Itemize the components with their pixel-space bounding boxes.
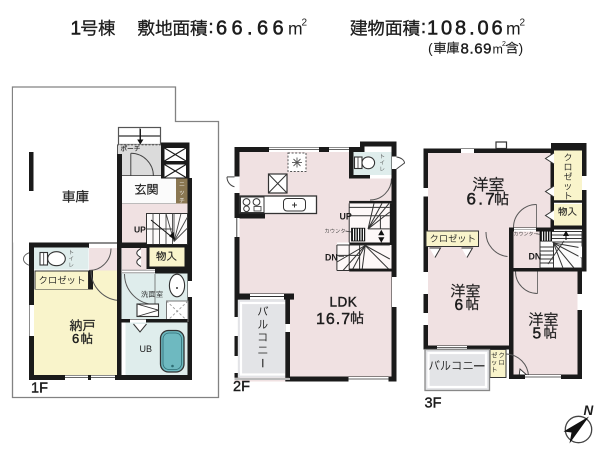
svg-text:m: m <box>506 19 521 39</box>
svg-text::: : <box>421 17 426 37</box>
svg-text:UP: UP <box>340 212 352 222</box>
svg-text:2: 2 <box>502 41 506 48</box>
svg-text:8.69: 8.69 <box>461 41 493 58</box>
svg-text::: : <box>209 17 214 37</box>
svg-text:5: 5 <box>533 326 542 343</box>
svg-text:1F: 1F <box>31 381 48 397</box>
svg-text:DN: DN <box>529 252 542 262</box>
svg-text:UB: UB <box>140 344 153 354</box>
svg-text:2: 2 <box>520 18 526 29</box>
svg-text:108.06: 108.06 <box>427 18 506 40</box>
svg-text:m: m <box>288 19 303 39</box>
svg-text:16.7: 16.7 <box>316 311 351 328</box>
svg-text:3F: 3F <box>425 396 442 412</box>
svg-text:(: ( <box>428 40 433 56</box>
svg-text:6: 6 <box>455 297 464 314</box>
svg-text:6.7: 6.7 <box>467 190 498 209</box>
svg-text:2: 2 <box>302 18 308 29</box>
svg-text:DN: DN <box>325 253 338 263</box>
svg-text:6: 6 <box>72 331 79 346</box>
svg-text:66.66: 66.66 <box>216 18 288 40</box>
svg-text:N: N <box>584 403 594 418</box>
svg-text:LDK: LDK <box>330 295 358 310</box>
svg-text:2F: 2F <box>233 379 250 395</box>
svg-text:1: 1 <box>71 19 82 40</box>
svg-text:UP: UP <box>134 225 146 235</box>
svg-text:): ) <box>519 40 524 56</box>
